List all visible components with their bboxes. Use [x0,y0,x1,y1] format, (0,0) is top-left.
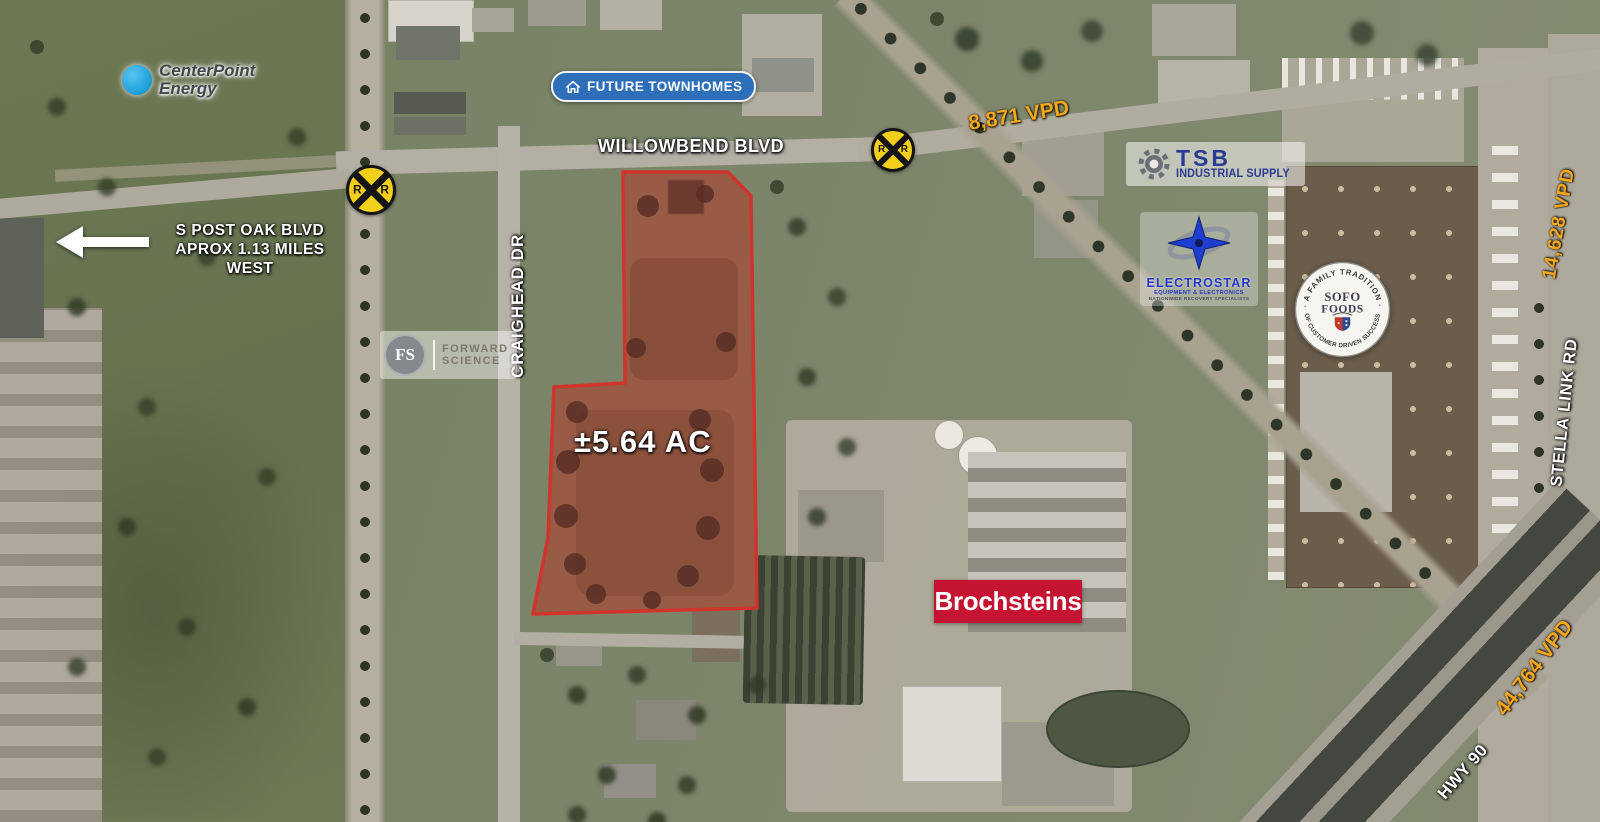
loading-docks [1268,180,1284,580]
future-townhomes-badge: FUTURE TOWNHOMES [551,71,756,102]
site-building [668,180,704,214]
dark-field-rows [743,555,866,705]
roof [692,606,740,662]
building [528,0,586,26]
fs-line1: FORWARD [442,343,508,355]
arrow-shaft [81,237,149,247]
tree-cluster [540,648,554,662]
arrow-head [56,226,83,258]
dirt-shade-upper [630,258,738,380]
railroad-trees-west [352,0,378,822]
property-red-outline [533,172,757,614]
urban-top-left-corner [0,218,44,338]
post-oak-line2: APROX 1.13 MILES WEST [150,240,350,278]
electrostar-sub1: EQUIPMENT & ELECTRONICS [1140,290,1258,297]
centerpoint-line1: CenterPoint [159,62,255,80]
pond [1046,690,1190,768]
building [600,0,662,30]
electrostar-sub2: NATIONWIDE RECOVERY SPECIALISTS [1140,297,1258,303]
forward-science-logo: FS FORWARD SCIENCE [380,331,517,379]
brochsteins-name: Brochsteins [935,586,1082,617]
railroad-crossing-icon: R R [871,128,915,172]
post-oak-line1: S POST OAK BLVD [150,221,350,240]
roof [604,764,656,798]
west-arrow-icon [56,226,152,258]
tsb-logo: TSB INDUSTRIAL SUPPLY [1126,142,1305,186]
building [394,117,466,135]
electrostar-logo: ELECTROSTAR EQUIPMENT & ELECTRONICS NATI… [1140,212,1258,306]
electrostar-name: ELECTROSTAR [1140,277,1258,290]
tree-cluster [930,12,944,26]
street-label-willowbend: WILLOWBEND BLVD [598,136,784,157]
sofo-name-line2: FOODS [1321,302,1363,315]
sofo-foods-logo: · A FAMILY TRADITION · OF CUSTOMER DRIVE… [1294,261,1391,358]
aerial-site-map: CenterPoint Energy FUTURE TOWNHOMES WILL… [0,0,1600,822]
property-red-fill [533,172,757,614]
building [472,8,514,32]
centerpoint-circle-icon [122,65,152,95]
centerpoint-energy-logo: CenterPoint Energy [122,62,255,98]
rr-letter-right: R [901,144,908,155]
tsb-tagline: INDUSTRIAL SUPPLY [1176,168,1290,180]
future-townhomes-label: FUTURE TOWNHOMES [587,79,742,94]
fs-line2: SCIENCE [442,355,508,367]
rr-letter-left: R [878,144,885,155]
fs-divider [433,340,435,370]
building [1152,4,1236,56]
railroad-crossing-icon: R R [346,165,396,215]
tree-cluster [770,180,784,194]
centerpoint-line2: Energy [159,80,255,98]
trailers-east [1492,140,1518,560]
house-icon [565,80,581,94]
rr-letter-right: R [380,182,389,196]
roof [636,700,696,740]
electrostar-star-icon [1162,214,1236,272]
tree-cluster [30,40,44,54]
site-area-label: ±5.64 AC [574,424,712,460]
building [752,58,814,92]
property-dirt [533,172,757,614]
building [394,92,466,114]
site-trees [554,185,736,609]
building-white [902,686,1002,782]
rr-letter-left: R [353,182,362,196]
building [396,26,460,60]
tsb-name: TSB [1176,148,1297,168]
building [798,490,884,562]
brochsteins-sign: Brochsteins [934,580,1082,623]
fs-circle-icon: FS [384,334,426,376]
urban-bottom-left [0,308,102,822]
gear-icon [1136,146,1172,182]
post-oak-note: S POST OAK BLVD APROX 1.13 MILES WEST [150,221,350,278]
